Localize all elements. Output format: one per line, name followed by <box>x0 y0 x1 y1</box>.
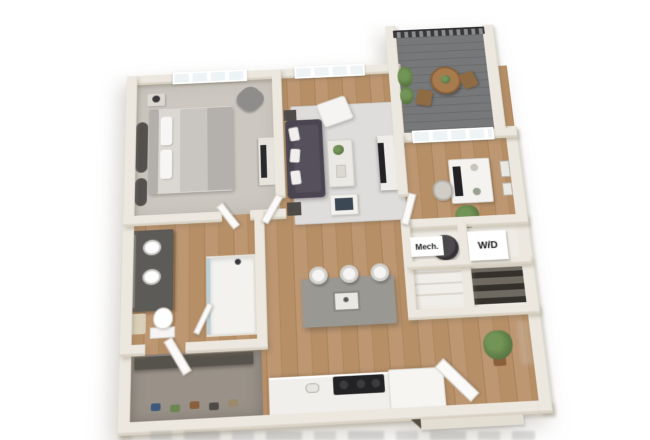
sofa-pillow <box>290 149 301 163</box>
shoes <box>170 404 180 412</box>
sofa-pillow <box>290 170 302 185</box>
apartment-floor-plan: Mech. W/D <box>92 16 607 440</box>
tray <box>335 198 354 211</box>
bed-headboard <box>148 109 159 194</box>
balcony-chair <box>415 89 433 107</box>
mech-closet-label: Mech. <box>410 236 444 257</box>
side-table <box>287 202 302 216</box>
shoes <box>209 402 219 410</box>
floor-plan-render: Mech. W/D <box>0 0 650 440</box>
window-drapes <box>135 122 148 173</box>
washer-dryer-label: W/D <box>467 230 509 261</box>
shower-stall <box>206 254 257 337</box>
den-wall-art <box>499 160 511 177</box>
bathroom-closet-wall-left <box>120 344 146 357</box>
window-drapes <box>135 178 148 206</box>
bath-mat <box>131 313 146 334</box>
den-wall-art <box>502 182 513 195</box>
bed-pillow <box>160 149 172 179</box>
coffee-table-decor <box>336 165 347 178</box>
shoes <box>190 401 200 409</box>
cropped-caption <box>150 431 535 440</box>
stoop-shadow-corner <box>411 419 422 429</box>
linen-closet-shelves <box>414 269 464 305</box>
side-table <box>284 110 297 121</box>
bed-pillow <box>160 117 172 146</box>
desk-chair <box>432 180 454 201</box>
shoes <box>151 403 161 411</box>
bed-blanket <box>207 107 233 191</box>
shoes <box>228 399 238 407</box>
storage-closet-shelves <box>471 266 531 305</box>
counter-sink <box>305 383 319 393</box>
bedroom-tv <box>260 145 267 178</box>
wd-label-text: W/D <box>477 239 498 251</box>
mech-label-text: Mech. <box>415 241 439 251</box>
shower-glass <box>206 258 211 335</box>
